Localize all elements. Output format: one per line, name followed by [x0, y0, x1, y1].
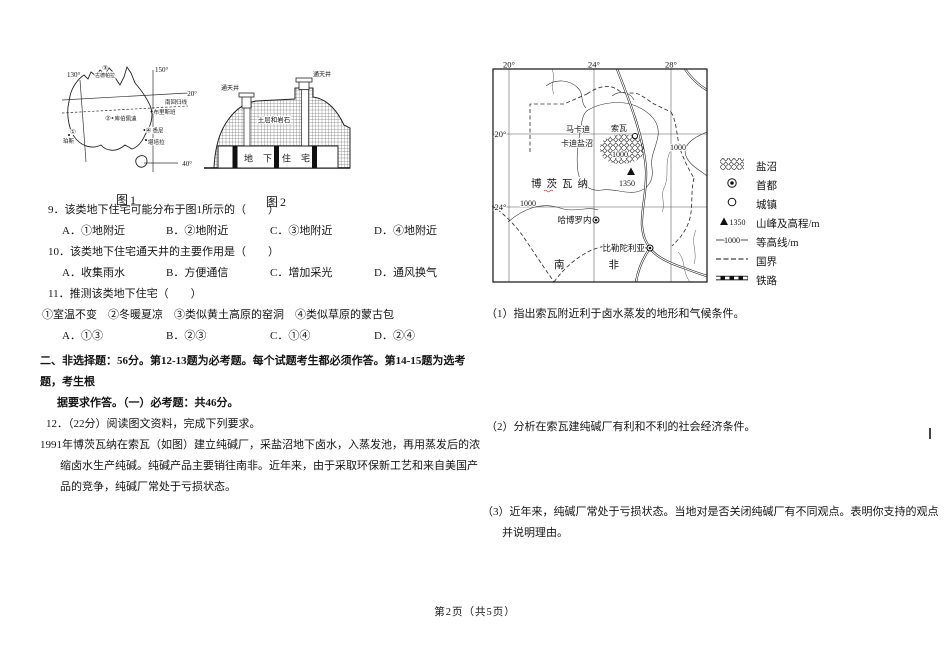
option-c: C．①④: [270, 326, 374, 347]
label-south-africa: 南非: [554, 258, 663, 271]
label-makgadikgadi-2: 卡迪盐沼: [561, 138, 593, 148]
label-contour-a: 1000: [612, 150, 628, 159]
figure-1-caption: 图1: [56, 190, 198, 211]
option-b: B．②③: [166, 326, 270, 347]
label-40: 40°: [182, 160, 192, 168]
label-shaft-right: 通天井: [313, 71, 331, 79]
option-a: A．收集雨水: [62, 263, 166, 284]
sowa-town-dot: [632, 133, 637, 138]
left-column: 130° 150° 20° 40° 南回归线 ③ 古德帕拉 ② 库伯佩迪 ① 珀…: [40, 58, 482, 498]
sub-question-2: （2）分析在索瓦建纯碱厂有利和不利的社会经济条件。: [486, 417, 944, 438]
label-shaft-left: 通天井: [221, 84, 239, 92]
page-footer: 第2页（共5页）: [0, 604, 950, 619]
label-sydney: 悉尼: [153, 127, 165, 135]
option-b: B．②地附近: [166, 221, 270, 242]
sub-question-1: （1）指出索瓦附近利于卤水蒸发的地形和气候条件。: [486, 304, 944, 325]
question-10-options: A．收集雨水 B．方便通信 C．增加采光 D．通风换气: [62, 263, 482, 284]
label-botswana: 博茨瓦纳: [531, 177, 593, 190]
question-11-options: A．①③ B．②③ C．①④ D．②④: [62, 326, 482, 347]
legend-label: 盐沼: [756, 157, 777, 178]
label-brisbane: 布里斯班: [154, 108, 177, 116]
option-d: D．通风换气: [374, 263, 437, 284]
label-peak-elev: 1350: [619, 179, 635, 188]
lon-label-24: 24°: [588, 60, 600, 70]
figure-2-cross-section: 土层和岩石 通天井 通天井 地下住宅 图2: [202, 70, 352, 213]
option-d: D．②④: [374, 326, 415, 347]
map-legend: 盐沼 首都 城镇 1350: [712, 158, 820, 291]
gaborone-capital-dot: [593, 217, 599, 223]
option-b: B．方便通信: [166, 263, 270, 284]
question-11-statements: ①室温不变 ②冬暖夏凉 ③类似黄土高原的窑洞 ④类似草原的蒙古包: [42, 305, 482, 326]
label-city-3: 古德帕拉: [95, 72, 115, 79]
label-rock: 土层和岩石: [258, 115, 291, 124]
lat-label-24: 24°: [495, 202, 507, 212]
botswana-map-block: 20° 24° 28° 20° 24° 索瓦 马卡迪: [482, 60, 944, 296]
legend-item-railway: 铁路: [712, 272, 820, 291]
option-c: C．③地附近: [270, 221, 374, 242]
marker-3: ③: [102, 65, 108, 72]
pretoria-capital-dot: [647, 245, 653, 251]
lon-label-20: 20°: [503, 60, 515, 70]
map-graticule: [493, 69, 707, 282]
option-d: D．④地附近: [374, 221, 437, 242]
legend-label: 铁路: [756, 271, 777, 292]
australia-map-svg: 130° 150° 20° 40° 南回归线 ③ 古德帕拉 ② 库伯佩迪 ① 珀…: [56, 60, 198, 180]
label-perth: 珀斯: [63, 137, 75, 145]
legend-label: 国界: [756, 252, 777, 273]
label-130: 130°: [67, 71, 81, 79]
option-a: A．①地附近: [62, 221, 166, 242]
label-coober-pedy: 库伯佩迪: [115, 115, 138, 123]
legend-label: 等高线/m: [756, 233, 799, 254]
cross-section-svg: 土层和岩石 通天井 通天井 地下住宅: [202, 70, 352, 182]
figure-1-australia-map: 130° 150° 20° 40° 南回归线 ③ 古德帕拉 ② 库伯佩迪 ① 珀…: [56, 60, 198, 211]
lon-label-28: 28°: [665, 60, 677, 70]
label-canberra: 堪培拉: [148, 138, 165, 146]
meridian-130-line: [80, 80, 86, 162]
label-tropic: 南回归线: [165, 98, 188, 106]
spellcheck-squiggle: [544, 190, 553, 192]
legend-label: 山峰及高程/m: [756, 214, 820, 235]
section-2-heading: 二、非选择题：56分。第12-13题为必考题。每个试题考生都必须作答。第14-1…: [40, 351, 482, 414]
question-12-material: 1991年博茨瓦纳在索瓦（如图）建立纯碱厂，采盐沼地下卤水，入蒸发池，再用蒸发后…: [40, 435, 482, 498]
marker-1: ①: [70, 129, 76, 136]
figure-2-caption: 图2: [202, 192, 352, 213]
question-10: 10．该类地下住宅通天井的主要作用是（ ） A．收集雨水 B．方便通信 C．增加…: [40, 242, 482, 284]
label-makgadikgadi-1: 马卡迪: [566, 124, 590, 134]
lat-label-20: 20°: [495, 129, 507, 139]
question-11: 11．推测该类地下住宅（ ） ①室温不变 ②冬暖夏凉 ③类似黄土高原的窑洞 ④类…: [40, 284, 482, 347]
label-pretoria: 比勒陀利亚: [602, 243, 645, 253]
marker-4: ④: [146, 128, 152, 135]
section-2-heading-line1: 二、非选择题：56分。第12-13题为必考题。每个试题考生都必须作答。第14-1…: [40, 351, 482, 393]
right-column: 20° 24° 28° 20° 24° 索瓦 马卡迪: [482, 60, 944, 544]
railway-icon: [712, 270, 756, 294]
figures-row: 130° 150° 20° 40° 南回归线 ③ 古德帕拉 ② 库伯佩迪 ① 珀…: [40, 58, 482, 200]
label-150: 150°: [155, 66, 169, 74]
question-12-lead: 12．（22分）阅读图文资料，完成下列要求。: [46, 414, 482, 435]
section-2-heading-line2: 据要求作答。（一）必考题：共46分。: [40, 393, 482, 414]
botswana-map-svg: 20° 24° 28° 20° 24° 索瓦 马卡迪: [492, 60, 708, 286]
option-c: C．增加采光: [270, 263, 374, 284]
svg-text:1350: 1350: [730, 218, 746, 227]
marker-2: ②: [105, 116, 111, 123]
option-a: A．①③: [62, 326, 166, 347]
legend-label: 城镇: [756, 195, 777, 216]
legend-label: 首都: [756, 176, 777, 197]
map-border-dashed: [492, 87, 694, 282]
svg-text:1000: 1000: [724, 236, 740, 245]
question-10-stem: 10．该类地下住宅通天井的主要作用是（ ）: [48, 242, 482, 263]
map-frame: [493, 69, 707, 282]
sub-question-3: （3）近年来，纯碱厂常处于亏损状态。当地对是否关闭纯碱厂有不同观点。表明你支持的…: [482, 502, 944, 544]
label-gaborone: 哈博罗内: [557, 215, 591, 225]
label-sowa: 索瓦: [611, 123, 627, 133]
label-contour-b: 1000: [670, 143, 686, 152]
question-11-stem: 11．推测该类地下住宅（ ）: [48, 284, 482, 305]
scan-artifact-mark: [929, 428, 931, 439]
label-dwelling: 地下住宅: [244, 153, 320, 164]
peak-triangle: [627, 168, 635, 176]
label-20: 20°: [187, 90, 197, 98]
tasmania-outline: [136, 156, 147, 168]
label-contour-c: 1000: [520, 199, 536, 208]
question-9-options: A．①地附近 B．②地附近 C．③地附近 D．④地附近: [62, 221, 482, 242]
